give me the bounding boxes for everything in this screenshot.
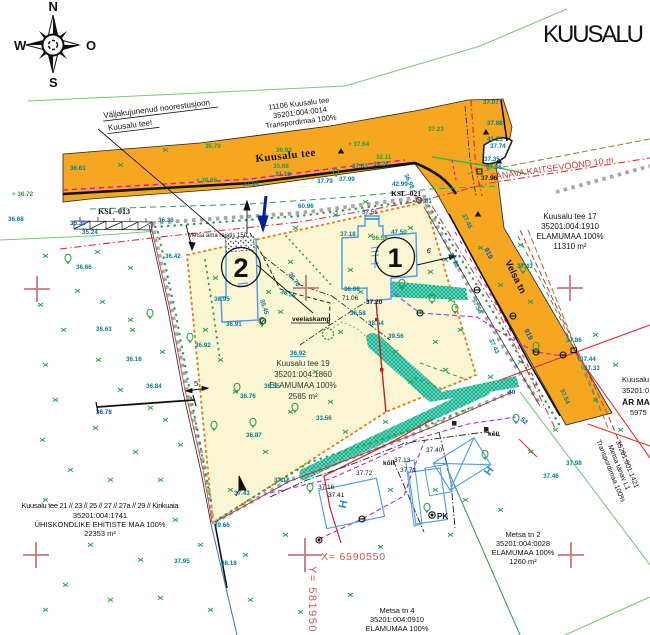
svg-text:+ 36.72: + 36.72 — [12, 191, 34, 198]
svg-text:S: S — [49, 75, 58, 90]
svg-text:ÜHISKONDLIKE EHITISTE MAA 100%: ÜHISKONDLIKE EHITISTE MAA 100% — [35, 520, 166, 529]
svg-text:37.96: 37.96 — [481, 175, 498, 182]
svg-text:35.68: 35.68 — [273, 163, 289, 170]
svg-text:KSL–021: KSL–021 — [391, 189, 421, 198]
svg-text:Kuusalu tee 17: Kuusalu tee 17 — [543, 212, 597, 221]
svg-text:36.87: 36.87 — [246, 432, 262, 439]
svg-text:PK: PK — [437, 512, 448, 521]
svg-text:39.56: 39.56 — [388, 333, 404, 340]
svg-text:X= 6590550: X= 6590550 — [321, 551, 386, 563]
svg-text:35201:004:0910: 35201:004:0910 — [370, 615, 424, 624]
svg-text:11310 m²: 11310 m² — [553, 242, 587, 251]
svg-text:35201:004:1860: 35201:004:1860 — [274, 370, 332, 379]
svg-text:37.63: 37.63 — [352, 163, 368, 170]
svg-text:36.66: 36.66 — [76, 264, 92, 271]
svg-text:36.06: 36.06 — [344, 286, 360, 293]
svg-text:37.74: 37.74 — [490, 143, 506, 150]
svg-text:Metsa tn 4: Metsa tn 4 — [379, 606, 414, 615]
svg-text:35201:004:1741: 35201:004:1741 — [73, 511, 127, 520]
svg-text:N: N — [49, 0, 58, 14]
svg-text:2: 2 — [233, 253, 248, 283]
svg-text:71.06: 71.06 — [342, 295, 359, 302]
svg-text:37.07: 37.07 — [483, 99, 499, 106]
svg-text:Y= 581950: Y= 581950 — [306, 566, 318, 633]
svg-text:Kuusalu tee 19: Kuusalu tee 19 — [276, 359, 330, 368]
svg-text:60.96: 60.96 — [298, 203, 314, 210]
svg-text:36.42: 36.42 — [165, 253, 181, 260]
svg-text:36.58: 36.58 — [350, 310, 366, 317]
svg-text:5975: 5975 — [630, 408, 647, 417]
svg-text:+ 36.66: + 36.66 — [196, 177, 218, 184]
svg-text:36.58: 36.58 — [372, 235, 388, 242]
svg-text:KUUSALU: KUUSALU — [543, 21, 644, 48]
svg-text:35.30: 35.30 — [70, 220, 86, 227]
svg-text:35201:0: 35201:0 — [622, 386, 649, 395]
svg-text:37.88: 37.88 — [487, 120, 503, 127]
svg-text:ELAMUMAA 100%: ELAMUMAA 100% — [536, 232, 603, 241]
svg-text:42.99: 42.99 — [392, 181, 408, 188]
svg-text:36.61: 36.61 — [70, 165, 86, 172]
svg-text:Metsa tn 2: Metsa tn 2 — [505, 530, 540, 539]
svg-text:37.43: 37.43 — [517, 263, 533, 270]
svg-text:36.76: 36.76 — [240, 393, 256, 400]
svg-text:38.18: 38.18 — [221, 560, 237, 567]
svg-text:32.11: 32.11 — [376, 154, 392, 161]
svg-text:37.99: 37.99 — [339, 176, 355, 183]
svg-text:36.84: 36.84 — [146, 383, 162, 390]
svg-text:36.55: 36.55 — [264, 383, 280, 390]
svg-text:37.35: 37.35 — [484, 156, 500, 163]
svg-text:36.79: 36.79 — [205, 143, 221, 150]
svg-text:Metsa ama rajatis 150: Metsa ama rajatis 150 — [188, 233, 248, 239]
svg-text:33.56: 33.56 — [316, 415, 332, 422]
svg-text:1260 m²: 1260 m² — [509, 557, 537, 566]
svg-text:36.78: 36.78 — [96, 409, 112, 416]
svg-text:36.91: 36.91 — [226, 321, 242, 328]
svg-text:KSL–013: KSL–013 — [98, 207, 130, 216]
svg-text:40: 40 — [508, 389, 516, 396]
svg-text:37.55: 37.55 — [362, 209, 378, 216]
svg-text:37.98: 37.98 — [566, 460, 582, 467]
svg-text:37.40: 37.40 — [426, 447, 443, 454]
svg-text:39.24: 39.24 — [373, 161, 389, 168]
svg-text:5: 5 — [194, 379, 198, 388]
svg-text:35201:004:0028: 35201:004:0028 — [496, 539, 550, 548]
svg-text:37.23: 37.23 — [428, 126, 444, 133]
svg-text:36.92: 36.92 — [195, 342, 211, 349]
svg-text:37.71: 37.71 — [400, 467, 417, 474]
svg-text:+ 37.64: + 37.64 — [348, 141, 370, 148]
svg-text:41.23: 41.23 — [487, 136, 503, 143]
svg-text:39.66: 39.66 — [214, 522, 230, 529]
svg-text:veelaskamp: veelaskamp — [292, 316, 331, 323]
svg-text:35.24: 35.24 — [82, 229, 98, 236]
svg-text:36.93: 36.93 — [276, 147, 292, 154]
svg-text:36.63: 36.63 — [96, 326, 112, 333]
svg-text:ÄR MAA: ÄR MAA — [622, 397, 650, 407]
svg-text:37.72: 37.72 — [356, 470, 373, 477]
svg-text:37.43: 37.43 — [234, 490, 250, 497]
svg-text:Kuusalu: Kuusalu — [622, 375, 649, 384]
svg-text:22353 m²: 22353 m² — [84, 529, 116, 538]
svg-text:38.54: 38.54 — [368, 320, 384, 327]
svg-text:31.18: 31.18 — [275, 171, 291, 178]
svg-text:47.50: 47.50 — [391, 229, 407, 236]
svg-text:07.61: 07.61 — [416, 198, 432, 205]
svg-text:1: 1 — [387, 243, 402, 273]
svg-text:36.92: 36.92 — [290, 350, 306, 357]
svg-text:67.36: 67.36 — [486, 164, 502, 171]
svg-text:36.36: 36.36 — [158, 217, 174, 224]
svg-text:O: O — [86, 38, 96, 53]
svg-text:ELAMUMAA 100%: ELAMUMAA 100% — [366, 624, 429, 633]
svg-text:37.86: 37.86 — [566, 337, 582, 344]
svg-text:kõll: kõll — [488, 431, 499, 438]
svg-text:37.79: 37.79 — [317, 178, 333, 185]
svg-text:37.44: 37.44 — [580, 356, 596, 363]
svg-text:W: W — [14, 38, 27, 53]
svg-text:37.33: 37.33 — [584, 365, 600, 372]
svg-text:36.16: 36.16 — [126, 356, 142, 363]
svg-text:37.46: 37.46 — [543, 473, 559, 480]
svg-text:37.13: 37.13 — [394, 457, 411, 464]
svg-text:2585 m²: 2585 m² — [288, 392, 318, 401]
svg-text:37.16: 37.16 — [318, 484, 335, 491]
svg-text:37.93: 37.93 — [243, 181, 259, 188]
svg-text:ELAMUMAA 100%: ELAMUMAA 100% — [492, 548, 555, 557]
svg-text:36.95: 36.95 — [214, 296, 230, 303]
svg-text:Kuusalu tee 21 // 23 // 25 //: Kuusalu tee 21 // 23 // 25 // 27 // 27a … — [22, 501, 180, 510]
svg-text:37.18: 37.18 — [340, 231, 356, 238]
svg-text:kõll: kõll — [383, 460, 394, 467]
svg-text:37.95: 37.95 — [174, 558, 190, 565]
svg-text:36.68: 36.68 — [8, 216, 24, 223]
svg-text:37.20: 37.20 — [366, 299, 383, 306]
svg-text:37.41: 37.41 — [328, 492, 345, 499]
svg-text:35201:004:1910: 35201:004:1910 — [541, 222, 599, 231]
